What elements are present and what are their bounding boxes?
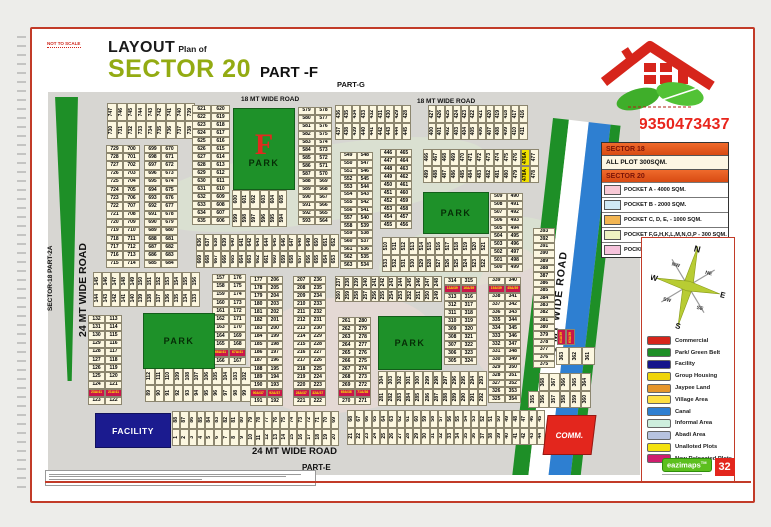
plot-cell: 63A/39 (566, 329, 575, 345)
plot-cell: 308 (444, 333, 461, 341)
legend-swatch (647, 360, 671, 369)
plot-cell: 43 (529, 428, 537, 446)
plot-cell: 607 (211, 209, 230, 217)
plot-cell: 122 (105, 397, 122, 405)
plot-cell: 624 (192, 129, 211, 137)
plot-cell: 357 (549, 391, 560, 409)
plot-cell: 210 (293, 300, 310, 308)
plot-cell: 376 (533, 354, 555, 361)
plot-cell: 620 (211, 105, 230, 113)
plot-cell: 112 (145, 367, 155, 385)
plot-cell: 534 (357, 261, 374, 269)
plot-cell: 21A/41 (105, 389, 122, 397)
plot-cell: 377 (533, 346, 555, 353)
plot-cell: 94 (193, 385, 203, 403)
plot-cell: 543 (357, 191, 374, 199)
plot-cell: 593 (298, 217, 315, 225)
plot-cell: 86 (189, 411, 197, 429)
plot-cell: 187 (250, 357, 267, 365)
plot-cell: 665 (230, 251, 238, 268)
plot-cell: 621 (192, 105, 211, 113)
plot-cell: 676 (161, 194, 178, 202)
legend-swatch (647, 348, 671, 357)
plot-cell: 275 (355, 357, 372, 365)
plot-cell: 549 (340, 152, 357, 160)
plot-cell: 111 (155, 367, 165, 385)
plot-cell: 224 (310, 373, 327, 381)
plot-cell: 39 (496, 428, 504, 446)
plot-block: 61A/3963A/39 (557, 329, 575, 345)
plot-cell: 496 (507, 240, 524, 248)
plot-cell: 173 (229, 299, 246, 307)
plot-cell: 671 (161, 153, 178, 161)
legend-swatch (647, 395, 671, 404)
plot-cell: 601 (241, 190, 250, 209)
plot-cell: 576 (315, 123, 332, 131)
plot-cell: 363 (556, 347, 569, 365)
plot-cell: 141 (120, 290, 129, 308)
plot-cell: 82 (222, 411, 230, 429)
plot-cell: 1 (172, 429, 180, 447)
plot-cell: 637 (204, 234, 212, 251)
plot-cell: 71A/36 (355, 389, 372, 397)
plot-cell: 699 (144, 145, 161, 153)
plot-cell: 686 (144, 251, 161, 259)
plot-cell: 191 (250, 397, 267, 405)
plot-cell: 254 (388, 289, 397, 302)
plot-cell: 23A/41 (88, 389, 105, 397)
plot-cell: 436 (335, 105, 343, 123)
plot-cell: 129 (88, 340, 105, 348)
plot-cell: 574 (315, 139, 332, 147)
plot-cell: 255 (379, 289, 388, 302)
plot-cell: 586 (298, 162, 315, 170)
plot-cell: 661 (263, 251, 271, 268)
plot-block: 7477467457447437427417407397307317327337… (107, 103, 195, 139)
plot-cell: 310 (444, 317, 461, 325)
plot-cell: 687 (144, 243, 161, 251)
plot-cell: 257 (362, 289, 371, 302)
legend-item: Abadi Area (647, 429, 731, 441)
plot-cell: 639 (221, 234, 229, 251)
plot-cell: 651 (322, 234, 330, 251)
plot-cell: 583 (298, 139, 315, 147)
plot-cell: 579 (298, 107, 315, 115)
road-24mt-left-label: 24 MT WIDE ROAD (77, 167, 89, 337)
plot-cell: 193 (267, 381, 284, 389)
plot-cell: 521 (480, 237, 489, 255)
plot-cell: 211 (293, 308, 310, 316)
plot-block: 6216206226196236186246176256166266156276… (192, 105, 230, 225)
plot-cell: 348 (505, 348, 522, 356)
plot-cell: 514 (418, 237, 427, 255)
park-label: PARK (395, 338, 426, 348)
plot-cell: 522 (480, 255, 489, 273)
plot-cell: 20 (331, 429, 339, 447)
plot-cell: 645 (272, 234, 280, 251)
plot-block: 5495485505475515465525455535445545435555… (340, 152, 373, 269)
pocket-swatch (604, 200, 621, 210)
plot-cell: 400 (428, 123, 436, 141)
plot-cell: 19 (322, 429, 330, 447)
plot-cell: 622 (192, 113, 211, 121)
park-label: PARK (164, 336, 195, 346)
plot-cell: 733 (136, 121, 146, 139)
plot-cell: 204 (267, 292, 284, 300)
plot-cell: 420 (486, 105, 494, 123)
plot-cell: 61A/39 (557, 329, 566, 345)
plot-cell: 684 (161, 260, 178, 268)
plot-cell: 391 (533, 243, 555, 250)
page-number-badge: 32 (715, 458, 735, 476)
plot-cell: 478A (521, 166, 530, 183)
plot-cell: 157 (212, 274, 229, 282)
plot-cell: 243 (388, 276, 397, 289)
plot-cell: 70 (322, 411, 330, 429)
plot-cell: 342 (505, 301, 522, 309)
plot-cell: 208 (293, 284, 310, 292)
compass-n: N (693, 243, 702, 254)
plot-cell: 367 (549, 373, 560, 391)
plot-cell: 74 (289, 411, 297, 429)
park-label: PARK (249, 158, 280, 168)
plot-cell: 476A (521, 149, 530, 166)
plot-cell: 715 (106, 260, 123, 268)
plot-cell: 146 (102, 272, 111, 290)
plot-cell: 383 (533, 302, 555, 309)
plot-cell: 516 (435, 237, 444, 255)
plot-cell: 623 (192, 121, 211, 129)
plot-cell: 418 (503, 105, 511, 123)
plot-cell: 718 (106, 235, 123, 243)
plot-cell: 88 (172, 411, 180, 429)
plot-cell: 323 (461, 349, 478, 357)
plot-cell: 408 (494, 123, 502, 141)
plot-cell: 284 (405, 389, 414, 407)
plot-cell: 423 (461, 105, 469, 123)
plot-cell: 118 (105, 356, 122, 364)
plot-cell: 608 (211, 201, 230, 209)
plot-cell: 209 (293, 292, 310, 300)
plot-cell: 188 (250, 365, 267, 373)
plot-cell: 10 (247, 429, 255, 447)
plot-cell: 296 (451, 371, 460, 389)
plot-cell: 578 (315, 107, 332, 115)
plot-cell: 515 (426, 237, 435, 255)
plot-cell: 19A/39 (488, 285, 505, 293)
plot-cell: 600 (232, 190, 241, 209)
plot-cell: 501 (490, 256, 507, 264)
plot-cell: 616 (211, 137, 230, 145)
plot-block: 6996706986716976726966736956746946756936… (144, 145, 178, 268)
plot-cell: 358 (560, 391, 571, 409)
plot-cell: 67A/41 (229, 349, 246, 357)
plot-cell: 474 (494, 149, 503, 166)
plot-cell: 5 (205, 429, 213, 447)
plot-cell: 29 (413, 428, 421, 446)
plot-cell: 57 (438, 410, 446, 428)
plot-cell: 34 (454, 428, 462, 446)
plot-cell: 332 (488, 340, 505, 348)
plot-cell: 644 (263, 234, 271, 251)
plot-cell: 278 (355, 333, 372, 341)
plot-cell: 11 (255, 429, 263, 447)
plot-cell: 627 (192, 153, 211, 161)
plot-cell: 321 (461, 333, 478, 341)
plot-cell: 232 (310, 308, 327, 316)
legend-label: Informal Area (675, 420, 712, 426)
plot-cell: 123 (88, 397, 105, 405)
plot-cell: 297 (442, 371, 451, 389)
plot-cell: 249 (433, 289, 442, 302)
plot-cell: 614 (211, 153, 230, 161)
plot-cell: 217 (293, 357, 310, 365)
plot-cell: 664 (238, 251, 246, 268)
legend-item: Village Area (647, 394, 731, 406)
plot-cell: 97 (222, 385, 232, 403)
plot-cell: 708 (123, 211, 140, 219)
plot-block: 3043033023013002992982972962952942932812… (378, 371, 487, 406)
plot-cell: 325 (488, 395, 505, 403)
plot-cell: 462 (396, 173, 412, 181)
plot-cell: 109 (174, 367, 184, 385)
plot-cell: 52 (479, 410, 487, 428)
plot-cell: 580 (298, 115, 315, 123)
compass-s: S (674, 321, 682, 331)
plot-cell: 473 (485, 149, 494, 166)
legend-label: Abadi Area (675, 432, 705, 438)
plot-cell: 720 (106, 219, 123, 227)
plot-cell: 290 (460, 389, 469, 407)
plot-cell: 136 (164, 290, 173, 308)
plot-cell: 338 (488, 293, 505, 301)
plot-cell: 402 (445, 123, 453, 141)
plot-block: 33934019A/3945A/393383413373423363433353… (488, 277, 521, 403)
plot-cell: 557 (340, 214, 357, 222)
plot-cell: 108 (183, 367, 193, 385)
plot-cell: 53 (471, 410, 479, 428)
divider-red-line (45, 481, 751, 483)
plot-cell: 401 (436, 123, 444, 141)
plot-cell: 199 (267, 333, 284, 341)
plot-cell: 730 (107, 121, 117, 139)
plot-cell: 551 (340, 168, 357, 176)
plot-cell: 719 (106, 227, 123, 235)
plot-cell: 427 (428, 105, 436, 123)
plot-cell: 316 (461, 293, 478, 301)
plot-cell: 248 (433, 276, 442, 289)
plot-cell: 339 (488, 277, 505, 285)
plot-cell: 178 (250, 284, 267, 292)
plot-cell: 12 (264, 429, 272, 447)
legend-swatch (647, 384, 671, 393)
plot-cell: 203 (267, 300, 284, 308)
plot-cell: 432 (369, 105, 377, 123)
plot-cell: 638 (213, 234, 221, 251)
plot-cell: 592 (298, 210, 315, 218)
plot-cell: 737 (176, 121, 186, 139)
plot-cell: 223 (310, 381, 327, 389)
plot-cell: 511 (391, 237, 400, 255)
legend-swatch (647, 431, 671, 440)
plot-cell: 417 (511, 105, 519, 123)
plot-cell: 438 (343, 123, 351, 141)
plot-cell: 236 (310, 276, 327, 284)
eazimaps-logo: eazimapsTM (662, 458, 712, 472)
plot-cell: 106 (203, 367, 213, 385)
plot-cell: 49 (504, 410, 512, 428)
house-leaves-logo (598, 36, 718, 114)
plot-cell: 723 (106, 194, 123, 202)
plot-cell: 27 (397, 428, 405, 446)
plot-block: 1121111101091081071061051041031021018990… (145, 367, 260, 402)
plot-cell: 709 (123, 219, 140, 227)
plot-cell: 537 (357, 238, 374, 246)
plot-cell: 603 (260, 190, 269, 209)
plot-cell: 42 (520, 428, 528, 446)
plot-cell: 724 (106, 186, 123, 194)
plot-cell: 149 (129, 272, 138, 290)
plot-cell: 251 (415, 289, 424, 302)
plot-cell: 512 (400, 237, 409, 255)
plot-cell: 550 (340, 160, 357, 168)
plot-cell: 75 (280, 411, 288, 429)
plot-cell: 641 (238, 234, 246, 251)
plot-cell: 309 (444, 325, 461, 333)
plot-cell: 717 (106, 243, 123, 251)
plot-cell: 612 (211, 169, 230, 177)
plot-cell: 497 (507, 248, 524, 256)
plot-cell: 472 (476, 149, 485, 166)
plot-cell: 213 (293, 325, 310, 333)
plot-cell: 660 (272, 251, 280, 268)
plot-cell: 212 (293, 316, 310, 324)
plot-cell: 326 (488, 387, 505, 395)
plot-cell: 3 (189, 429, 197, 447)
plot-cell: 14 (280, 429, 288, 447)
plot-cell: 121 (105, 381, 122, 389)
plot-cell: 281 (378, 389, 387, 407)
plot-cell: 482 (485, 166, 494, 183)
plot-cell: 541 (357, 207, 374, 215)
plot-cell: 449 (380, 173, 396, 181)
legend-swatch (647, 372, 671, 381)
plot-cell: 87 (180, 411, 188, 429)
plot-cell: 128 (88, 348, 105, 356)
plot-cell: 258 (353, 289, 362, 302)
plot-cell: 425 (445, 105, 453, 123)
plot-cell: 311 (444, 309, 461, 317)
legend-swatch (647, 419, 671, 428)
plot-block: 5105115125135145155165175185195205215335… (382, 237, 489, 272)
plot-block: 363362361 (556, 347, 595, 365)
plot-cell: 663 (246, 251, 254, 268)
plot-cell: 91 (164, 385, 174, 403)
plot-cell: 335 (488, 316, 505, 324)
plot-cell: 532 (391, 255, 400, 273)
color-legend: CommercialPark/ Green BeltFacilityGroup … (647, 335, 731, 465)
plot-cell: 656 (305, 251, 313, 268)
plot-cell: 234 (310, 292, 327, 300)
plot-cell: 410 (511, 123, 519, 141)
plot-cell: 313 (444, 293, 461, 301)
plot-cell: 477 (530, 149, 539, 166)
plot-cell: 666 (221, 251, 229, 268)
plot-cell: 156 (191, 272, 200, 290)
plot-cell: 633 (192, 201, 211, 209)
plot-cell: 722 (106, 202, 123, 210)
plot-cell: 181 (250, 308, 267, 316)
plot-cell: 180 (250, 300, 267, 308)
plot-cell: 140 (129, 290, 138, 308)
plot-cell: 606 (211, 217, 230, 225)
plot-cell: 617 (211, 129, 230, 137)
plot-cell: 705 (123, 186, 140, 194)
plot-block: 5094905084915074925064935054945044955034… (490, 193, 523, 272)
plot-cell: 105 (212, 367, 222, 385)
plot-cell: 347 (505, 340, 522, 348)
plot-cell: 64 (380, 410, 388, 428)
plot-cell: 23 (364, 428, 372, 446)
plot-cell: 440 (360, 123, 368, 141)
plot-cell: 485 (459, 166, 468, 183)
plot-cell: 133 (191, 290, 200, 308)
plot-cell: 455 (380, 221, 396, 229)
plot-cell: 577 (315, 115, 332, 123)
plot-cell: 59 (421, 410, 429, 428)
plot-cell: 130 (88, 331, 105, 339)
plot-cell: 429 (394, 105, 402, 123)
plot-cell: 619 (211, 113, 230, 121)
compass-sw: SW (662, 296, 672, 304)
plot-cell: 276 (355, 349, 372, 357)
plot-cell: 65 (372, 410, 380, 428)
legend-item: Canal (647, 406, 731, 418)
plot-cell: 435 (343, 105, 351, 123)
plot-cell: 328 (488, 372, 505, 380)
plot-cell: 28A/37 (293, 389, 310, 397)
plot-cell: 559 (340, 230, 357, 238)
plot-cell: 253 (397, 289, 406, 302)
plot-cell: 571 (315, 162, 332, 170)
plot-cell: 585 (298, 154, 315, 162)
plot-cell: 84 (205, 411, 213, 429)
plot-cell: 283 (396, 389, 405, 407)
plot-cell: 227 (310, 349, 327, 357)
road-24mt-bottom-label: 24 MT WIDE ROAD (252, 446, 337, 457)
plot-cell: 352 (505, 380, 522, 388)
plot-cell: 98 (231, 385, 241, 403)
plot-cell: 359 (570, 391, 581, 409)
plot-cell: 685 (144, 260, 161, 268)
plot-cell: 712 (123, 243, 140, 251)
plot-cell: 618 (211, 121, 230, 129)
plot-cell: 169 (229, 332, 246, 340)
plot-cell: 507 (490, 209, 507, 217)
plot-cell: 350 (505, 364, 522, 372)
plot-cell: 16 (297, 429, 305, 447)
plot-cell: 693 (144, 194, 161, 202)
plot-cell: 716 (106, 251, 123, 259)
plot-cell: 6 (214, 429, 222, 447)
plot-cell: 365 (570, 373, 581, 391)
plot-cell: 471 (467, 149, 476, 166)
plot-cell: 33 (446, 428, 454, 446)
disclaimer-box (45, 470, 316, 486)
plot-cell: 50 (496, 410, 504, 428)
plot-cell: 732 (127, 121, 137, 139)
plot-cell: 628 (192, 161, 211, 169)
